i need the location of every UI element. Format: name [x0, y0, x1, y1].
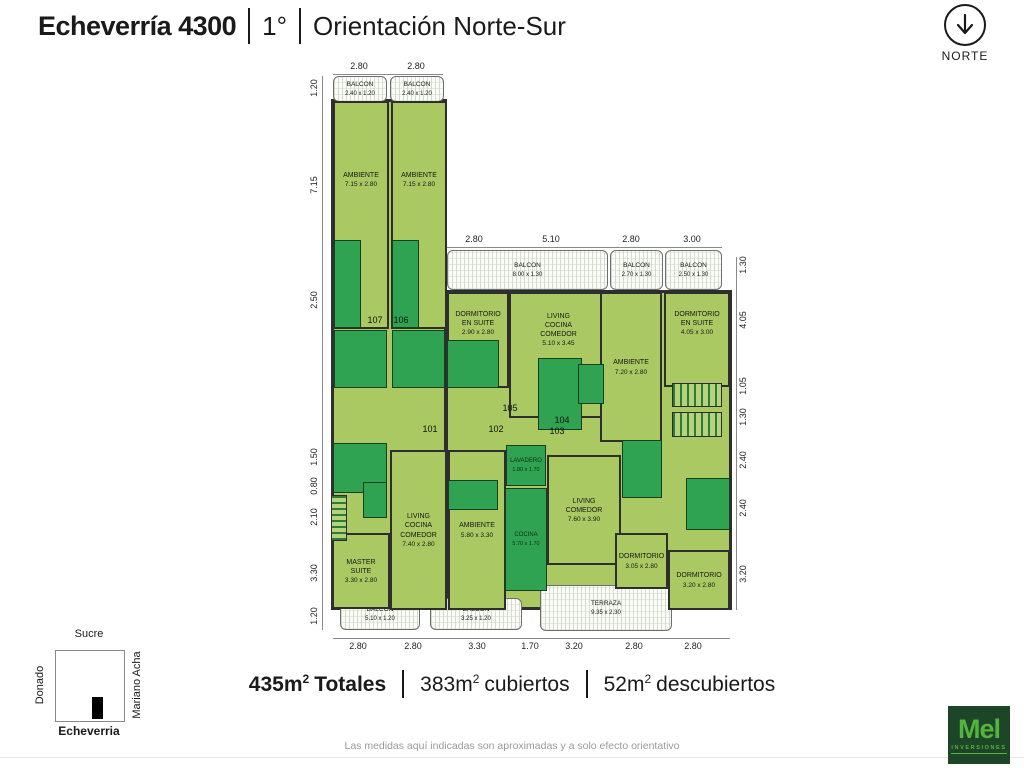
balcony: BALCON2.40 x 1.20 [390, 76, 444, 102]
logo-subtitle: INVERSIONES [951, 745, 1006, 754]
dimension-label: 2.50 [309, 291, 319, 309]
balcony: BALCON8.00 x 1.30 [447, 250, 608, 290]
dimension-label: 2.80 [684, 641, 702, 651]
wet-core [334, 330, 387, 388]
dimension-label: 1.30 [738, 256, 748, 274]
room-label: BALCON8.00 x 1.30 [513, 262, 543, 277]
wet-core [448, 480, 498, 510]
dimension-line [736, 257, 737, 610]
balcony: BALCON2.70 x 1.30 [610, 250, 663, 290]
area-totals: 435m2Totales 383m2cubiertos 52m2descubie… [0, 670, 1024, 698]
dimension-line [322, 76, 323, 630]
room-label: AMBIENTE5.80 x 3.30 [459, 521, 495, 538]
north-arrow-icon [944, 4, 986, 46]
stairs [672, 383, 722, 407]
unit-number-107: 107 [367, 315, 382, 325]
dimension-label: 2.40 [738, 499, 748, 517]
room-label: LAVADERO1.80 x 1.70 [510, 458, 542, 473]
dimension-label: 2.80 [622, 234, 640, 244]
dimension-label: 2.80 [625, 641, 643, 651]
stairs [672, 412, 722, 437]
room-dormitorio: DORMITORIO3.05 x 2.80 [615, 533, 668, 589]
dimension-label: 2.80 [350, 61, 368, 71]
page-title: Echeverría 4300 1° Orientación Norte-Sur [38, 8, 566, 44]
wet-core [392, 330, 445, 388]
dimension-label: 2.80 [349, 641, 367, 651]
room-lavadero: LAVADERO1.80 x 1.70 [506, 445, 546, 486]
room-label: BALCON2.40 x 1.20 [345, 81, 375, 96]
dimension-label: 2.80 [407, 61, 425, 71]
dimension-label: 5.10 [542, 234, 560, 244]
room-label: BALCON2.40 x 1.20 [402, 81, 432, 96]
dimension-label: 2.80 [404, 641, 422, 651]
dimension-label: 1.70 [521, 641, 539, 651]
title-orientation: Orientación Norte-Sur [313, 11, 566, 42]
unit-number-103: 103 [549, 426, 564, 436]
balcony: BALCON2.50 x 1.30 [665, 250, 722, 290]
disclaimer-text: Las medidas aquí indicadas son aproximad… [0, 740, 1024, 752]
dimension-label: 3.20 [565, 641, 583, 651]
north-compass: NORTE [935, 4, 995, 63]
wet-core [686, 478, 730, 530]
wet-core [622, 440, 662, 498]
dimension-label: 2.10 [309, 508, 319, 526]
wet-core [363, 482, 387, 518]
totals-separator [402, 670, 404, 698]
stairs [331, 495, 347, 541]
logo-name: Mel [958, 716, 1000, 743]
room-living-comedor: LIVING COMEDOR7.60 x 3.90 [547, 455, 621, 565]
floor-plan: BALCON2.40 x 1.20BALCON2.40 x 1.20BALCON… [300, 58, 760, 658]
room-label: BALCON2.50 x 1.30 [679, 262, 709, 277]
dimension-label: 0.80 [309, 477, 319, 495]
room-label: DORMITORIO3.05 x 2.80 [619, 552, 664, 569]
title-separator [299, 8, 301, 44]
unit-number-102: 102 [488, 424, 503, 434]
room-label: LIVING COMEDOR7.60 x 3.90 [566, 497, 603, 523]
down-arrow-icon [954, 13, 976, 37]
dimension-label: 1.30 [738, 408, 748, 426]
room-living-cocina-comedor: LIVING COCINA COMEDOR7.40 x 2.80 [390, 450, 447, 610]
terrace: TERRAZA9.35 x 2.30 [540, 585, 672, 631]
room-ambiente: AMBIENTE7.20 x 2.80 [600, 292, 662, 442]
balcony: BALCON2.40 x 1.20 [333, 76, 387, 102]
room-label: TERRAZA9.35 x 2.30 [591, 600, 621, 615]
room-master-suite: MASTER SUITE3.30 x 2.80 [332, 533, 390, 609]
room-dormitorio-en-suite: DORMITORIO EN SUITE4.05 x 3.00 [664, 292, 730, 387]
title-separator [248, 8, 250, 44]
room-ambiente: AMBIENTE5.80 x 3.30 [448, 450, 506, 610]
dimension-label: 2.40 [738, 451, 748, 469]
room-label: DORMITORIO EN SUITE2.90 x 2.80 [455, 294, 500, 336]
building-location-marker [92, 697, 103, 719]
street-label-echeverria: Echeverria [40, 724, 138, 738]
dimension-label: 1.20 [309, 607, 319, 625]
dimension-label: 4.05 [738, 311, 748, 329]
dimension-label: 1.05 [738, 377, 748, 395]
dimension-label: 1.20 [309, 79, 319, 97]
dimension-label: 1.50 [309, 448, 319, 466]
dimension-label: 7.15 [309, 176, 319, 194]
totals-separator [586, 670, 588, 698]
wet-core [334, 240, 361, 328]
wet-core [447, 340, 499, 388]
north-label: NORTE [935, 49, 995, 63]
unit-number-105: 105 [502, 403, 517, 413]
room-label: BALCON2.70 x 1.30 [622, 262, 652, 277]
title-floor: 1° [262, 11, 287, 42]
room-cocina: COCINA5.70 x 1.70 [505, 488, 547, 591]
wet-core [578, 364, 604, 404]
dimension-label: 3.30 [309, 564, 319, 582]
room-label: LIVING COCINA COMEDOR5.10 x 3.45 [540, 294, 577, 347]
dimension-label: 3.20 [738, 565, 748, 583]
title-address: Echeverría 4300 [38, 11, 236, 42]
total-area: 435m2Totales [249, 672, 386, 697]
uncovered-area: 52m2descubiertos [604, 672, 776, 697]
room-label: COCINA5.70 x 1.70 [512, 532, 539, 547]
dimension-line [333, 74, 443, 75]
dimension-label: 3.30 [468, 641, 486, 651]
room-label: AMBIENTE7.15 x 2.80 [401, 103, 437, 188]
street-label-sucre: Sucre [55, 628, 123, 640]
room-label: MASTER SUITE3.30 x 2.80 [345, 558, 377, 584]
unit-number-101: 101 [422, 424, 437, 434]
dimension-label: 2.80 [465, 234, 483, 244]
dimension-label: 3.00 [683, 234, 701, 244]
covered-area: 383m2cubiertos [420, 672, 569, 697]
footer-divider [0, 757, 1024, 758]
room-label: DORMITORIO EN SUITE4.05 x 3.00 [674, 294, 719, 336]
room-dormitorio: DORMITORIO3.20 x 2.80 [668, 550, 730, 610]
mel-inversiones-logo: Mel INVERSIONES [948, 706, 1010, 764]
unit-number-106: 106 [393, 315, 408, 325]
dimension-line [333, 638, 730, 639]
dimension-line [447, 247, 722, 248]
room-label: LIVING COCINA COMEDOR7.40 x 2.80 [400, 512, 437, 547]
unit-number-104: 104 [554, 415, 569, 425]
room-label: DORMITORIO3.20 x 2.80 [676, 571, 721, 588]
room-label: AMBIENTE7.20 x 2.80 [613, 358, 649, 375]
room-label: AMBIENTE7.15 x 2.80 [343, 103, 379, 188]
